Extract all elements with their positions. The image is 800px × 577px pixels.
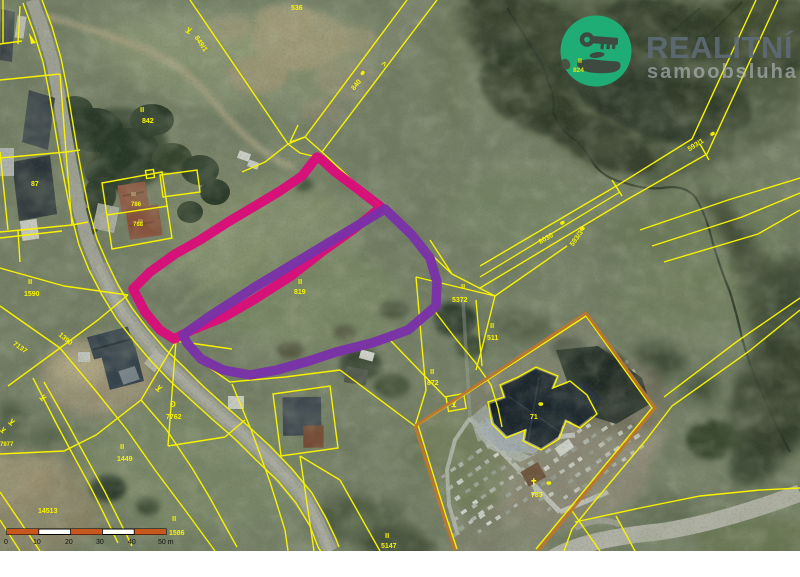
svg-text:II: II [430, 367, 434, 376]
svg-text:II: II [490, 321, 494, 330]
svg-text:14513: 14513 [38, 508, 58, 515]
svg-text:II: II [385, 531, 389, 540]
svg-text:511: 511 [487, 335, 498, 342]
svg-text:30: 30 [96, 539, 104, 546]
svg-text:5147: 5147 [381, 543, 397, 550]
svg-text:87: 87 [31, 181, 39, 188]
svg-text:✝: ✝ [530, 477, 538, 487]
svg-text:7977: 7977 [0, 442, 14, 448]
svg-text:II: II [298, 277, 302, 286]
svg-text:Đ: Đ [170, 400, 176, 409]
svg-text:788: 788 [133, 222, 144, 228]
svg-text:7762: 7762 [166, 414, 182, 421]
svg-text:1449: 1449 [117, 456, 133, 463]
svg-text:REALITNÍ: REALITNÍ [646, 30, 794, 65]
svg-text:786: 786 [131, 202, 142, 208]
svg-text:20: 20 [65, 539, 73, 546]
svg-text:⚭: ⚭ [545, 478, 553, 488]
svg-text:⚭: ⚭ [537, 399, 545, 409]
svg-text:II: II [461, 282, 465, 291]
svg-text:II: II [172, 514, 176, 523]
svg-text:71: 71 [530, 414, 538, 421]
svg-text:samoobsluha: samoobsluha [647, 61, 798, 83]
svg-text:II: II [578, 58, 582, 65]
svg-text:50 m: 50 m [158, 539, 174, 546]
svg-text:II: II [28, 277, 32, 286]
svg-text:819: 819 [294, 289, 306, 296]
svg-text:II: II [140, 105, 144, 114]
svg-text:10: 10 [33, 539, 41, 546]
svg-text:40: 40 [128, 539, 136, 546]
svg-text:536: 536 [291, 5, 303, 12]
svg-text:5372: 5372 [452, 297, 468, 304]
svg-text:1590: 1590 [24, 291, 40, 298]
svg-text:0: 0 [4, 539, 8, 546]
svg-text:872: 872 [427, 380, 439, 387]
svg-text:II: II [120, 442, 124, 451]
svg-text:1586: 1586 [169, 530, 185, 537]
svg-text:783: 783 [531, 492, 543, 499]
svg-text:842: 842 [142, 118, 154, 125]
svg-text:824: 824 [573, 67, 584, 74]
